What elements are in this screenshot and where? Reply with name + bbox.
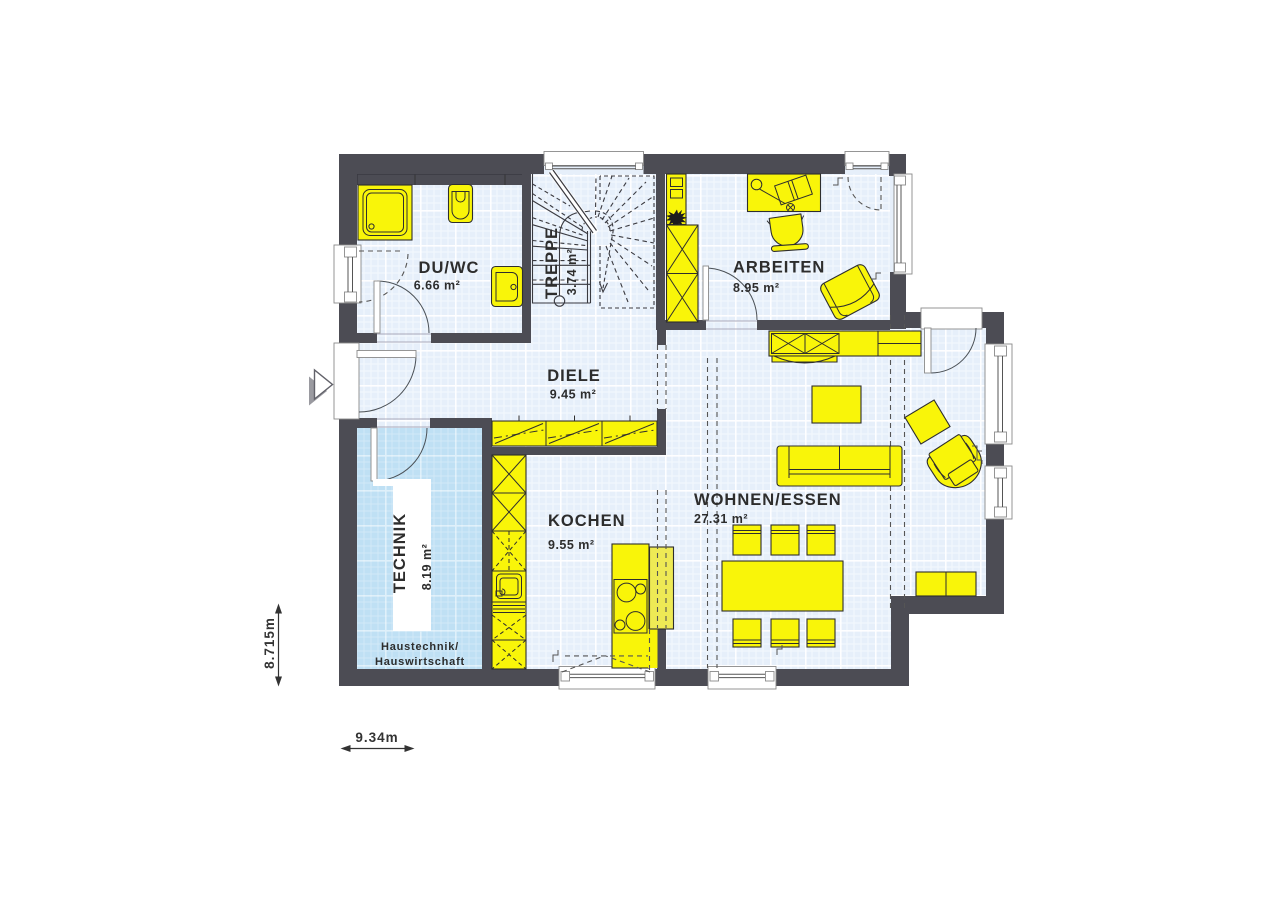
svg-text:3.74 m²: 3.74 m²	[565, 249, 579, 296]
svg-text:Hauswirtschaft: Hauswirtschaft	[375, 656, 465, 668]
svg-text:9.34m: 9.34m	[355, 730, 398, 745]
svg-text:DIELE: DIELE	[547, 367, 601, 385]
svg-text:27.31 m²: 27.31 m²	[694, 512, 748, 526]
svg-text:DU/WC: DU/WC	[419, 259, 480, 277]
svg-text:KOCHEN: KOCHEN	[548, 512, 626, 530]
svg-text:WOHNEN/ESSEN: WOHNEN/ESSEN	[694, 491, 842, 509]
svg-text:8.95 m²: 8.95 m²	[733, 281, 780, 295]
svg-text:TECHNIK: TECHNIK	[391, 513, 409, 593]
svg-text:ARBEITEN: ARBEITEN	[733, 259, 825, 277]
svg-text:Haustechnik/: Haustechnik/	[381, 641, 459, 653]
svg-text:9.55 m²: 9.55 m²	[548, 538, 595, 552]
svg-text:8.715m: 8.715m	[262, 617, 277, 669]
svg-text:9.45 m²: 9.45 m²	[550, 388, 597, 402]
svg-text:8.19 m²: 8.19 m²	[420, 544, 434, 591]
svg-text:TREPPE: TREPPE	[543, 227, 561, 299]
svg-text:6.66 m²: 6.66 m²	[414, 279, 461, 293]
